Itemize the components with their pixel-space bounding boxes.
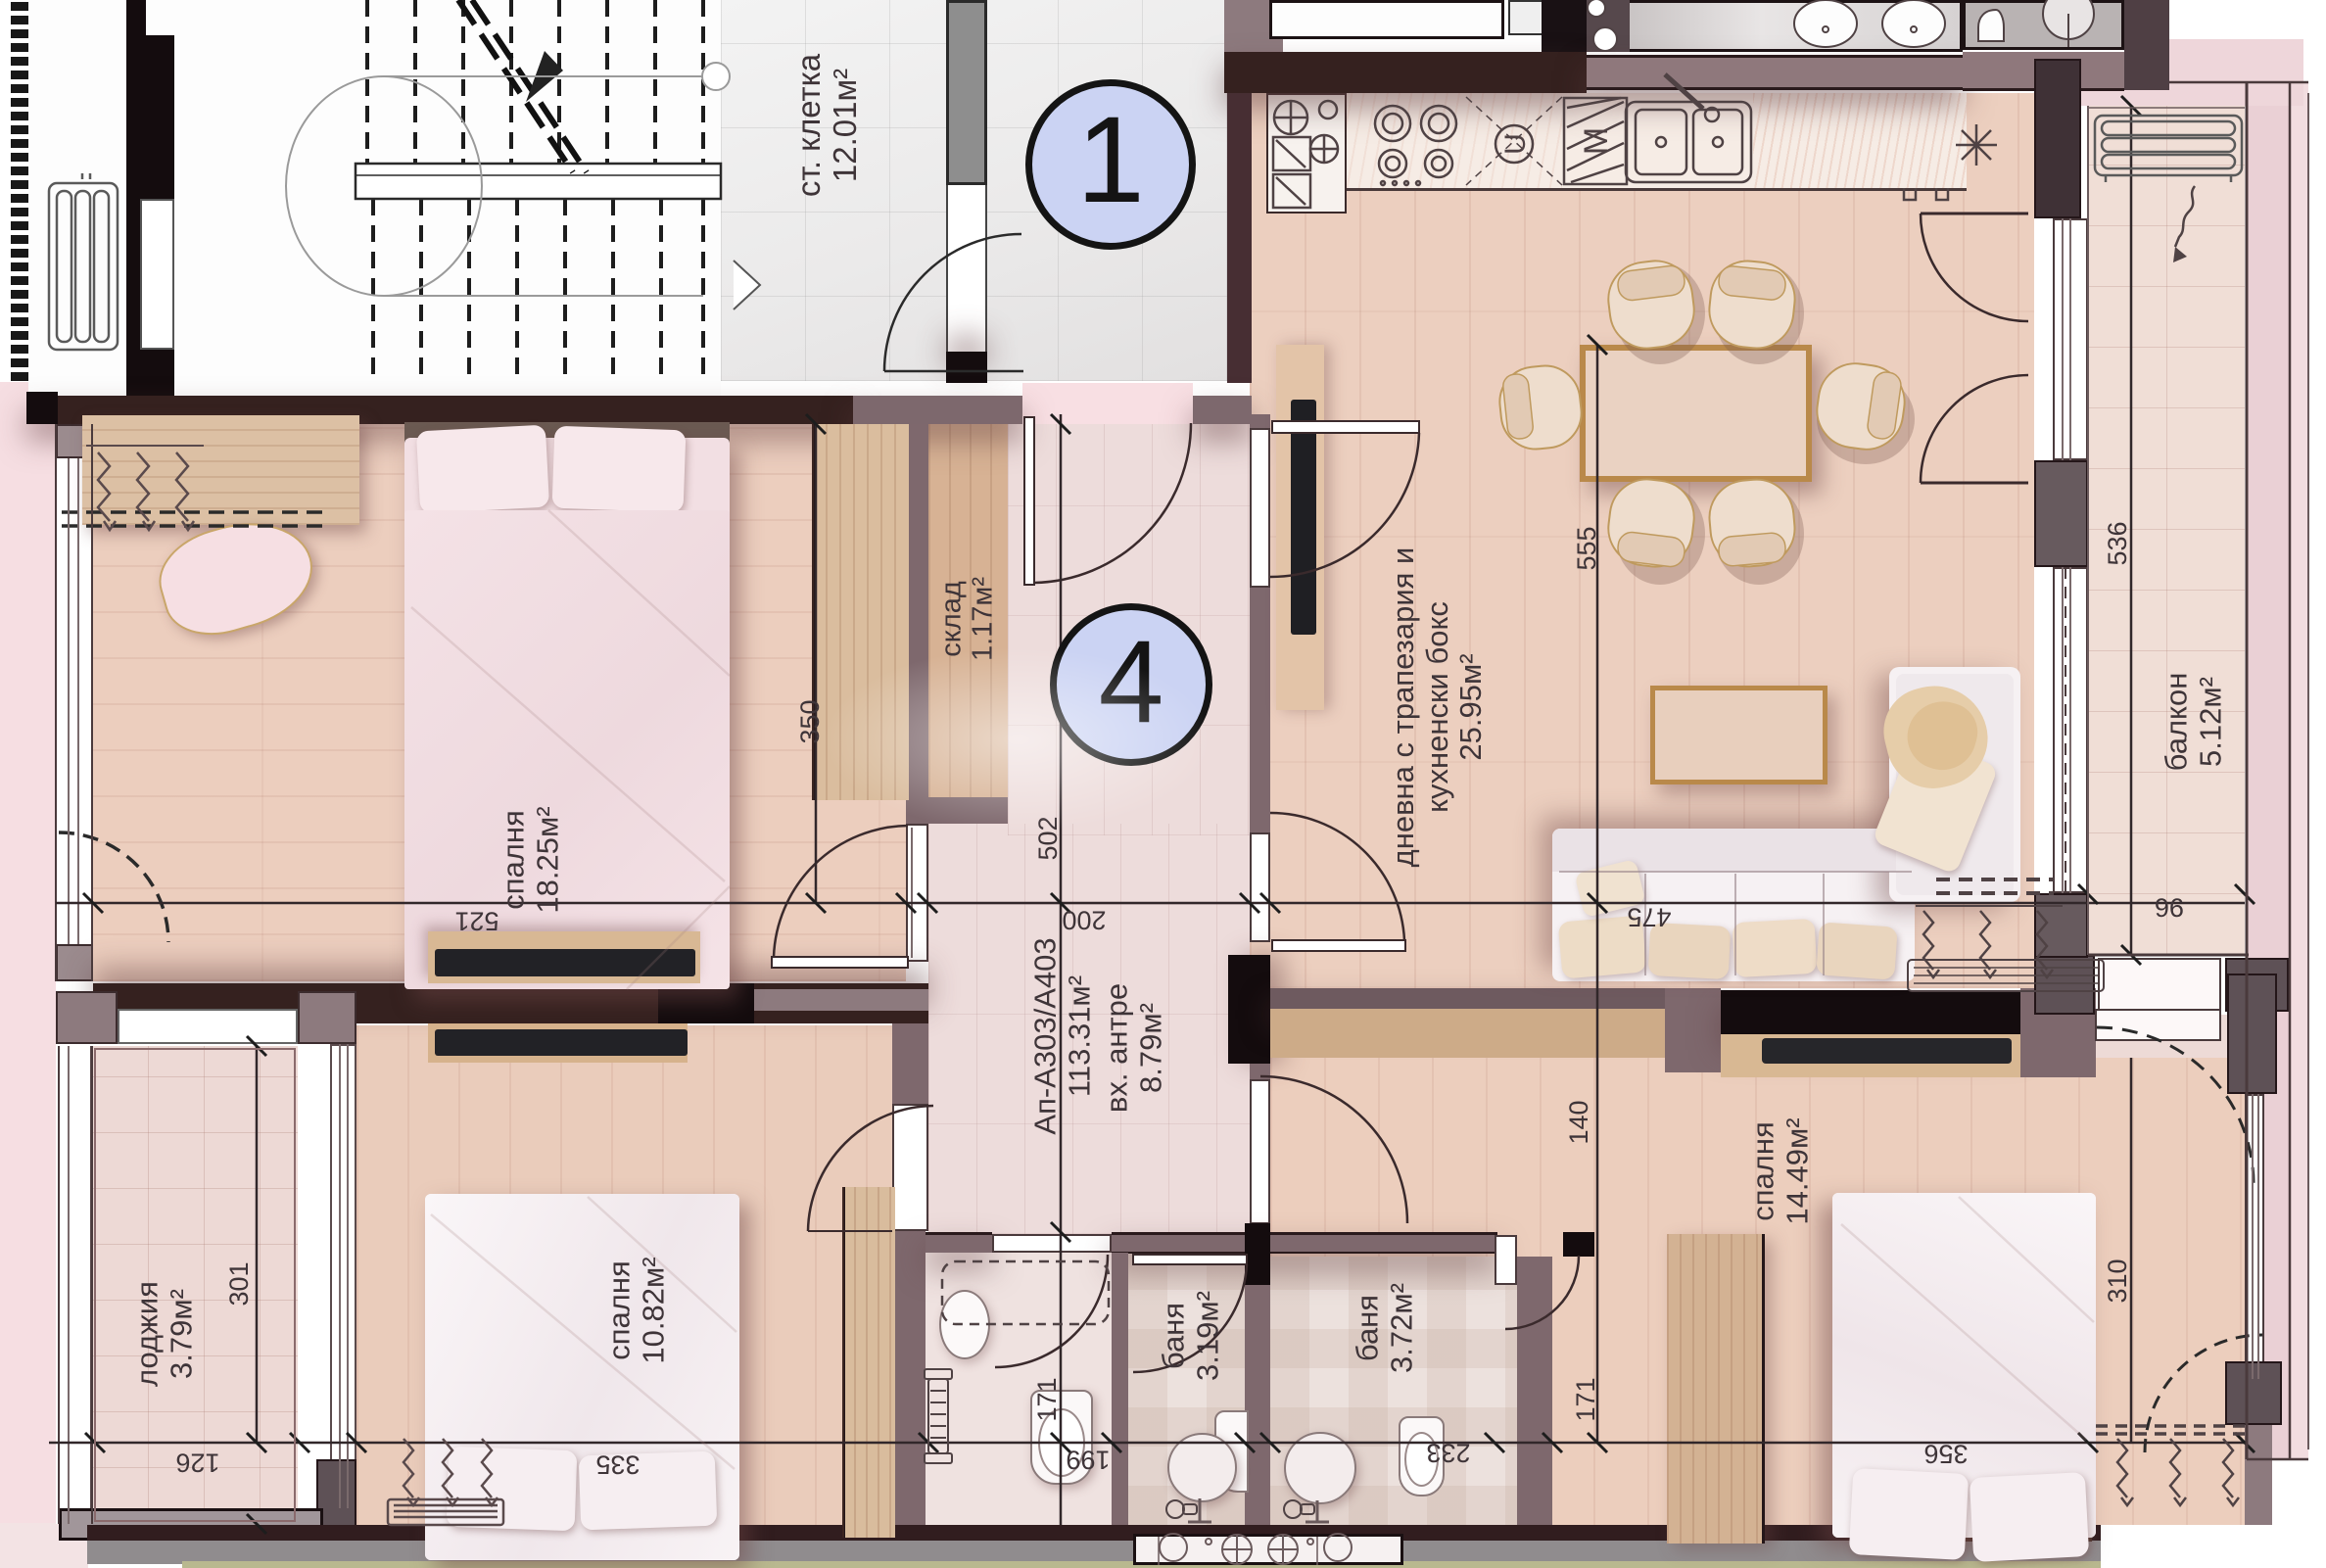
svg-text:U: U xyxy=(1499,133,1532,155)
svg-text:M: M xyxy=(1578,127,1615,155)
